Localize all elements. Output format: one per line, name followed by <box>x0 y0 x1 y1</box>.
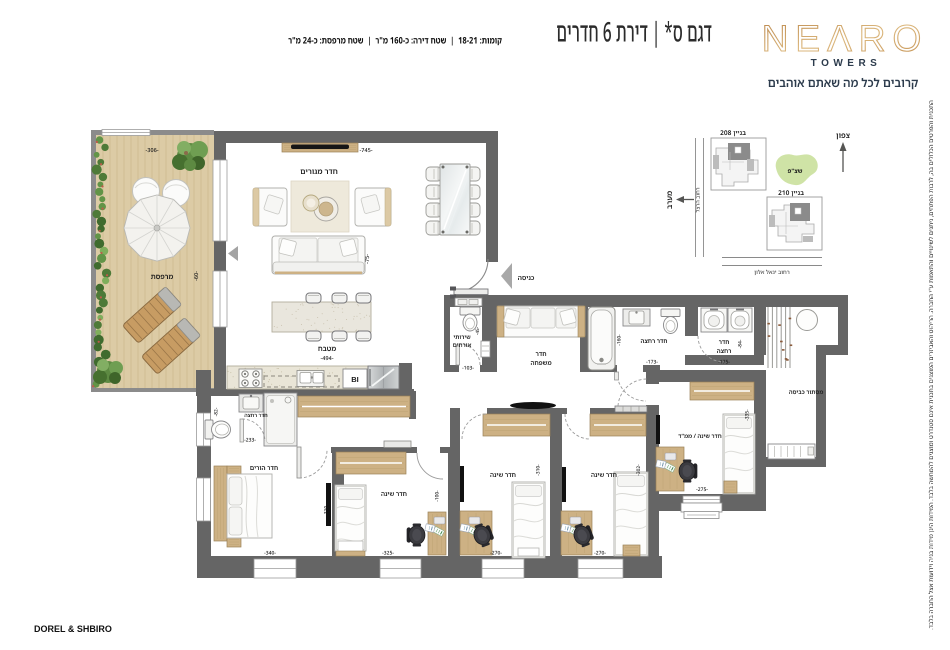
svg-text:DOREL & SHBIRO: DOREL & SHBIRO <box>34 624 112 634</box>
svg-text:NEΛRO: NEΛRO <box>762 18 929 59</box>
svg-text:BI: BI <box>351 375 359 384</box>
svg-text:TOWERS: TOWERS <box>811 58 882 69</box>
